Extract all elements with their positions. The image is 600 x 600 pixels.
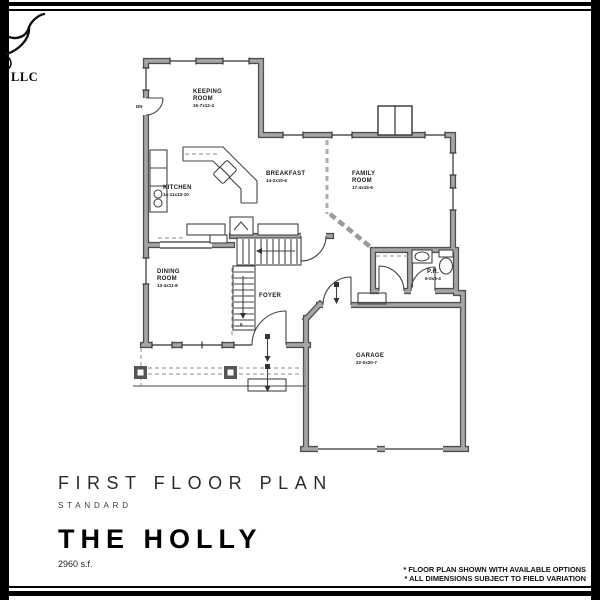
- powder-room-fixtures: [376, 250, 453, 274]
- breakfast-label: BREAKFAST: [266, 171, 305, 177]
- breakfast-dims: 14-2x10-6: [266, 178, 287, 183]
- foyer-label: FOYER: [259, 293, 282, 299]
- kitchen-label: KITCHEN: [163, 185, 192, 191]
- powder-room-dims: 6-0x5-4: [425, 276, 441, 281]
- dining-room-label2: ROOM: [157, 276, 177, 282]
- dining-room-dims: 13-4x11-8: [157, 283, 178, 288]
- disclaimer-line-2: * ALL DIMENSIONS SUBJECT TO FIELD VARIAT…: [403, 575, 586, 584]
- plan-title: FIRST FLOOR PLAN: [58, 473, 333, 494]
- angled-optional-wall: [330, 214, 373, 249]
- family-room-dims: 17-4x15-6: [352, 185, 373, 190]
- porch-column: [224, 366, 237, 379]
- keeping-room-dims: 16-7x12-4: [193, 103, 214, 108]
- garage-label: GARAGE: [356, 353, 384, 359]
- keeping-room-label: KEEPING: [193, 89, 222, 95]
- family-room-label2: ROOM: [352, 178, 372, 184]
- disclaimer-notes: * FLOOR PLAN SHOWN WITH AVAILABLE OPTION…: [403, 566, 586, 584]
- powder-room-label: P.R.: [427, 269, 439, 275]
- keeping-room-label2: ROOM: [193, 96, 213, 102]
- dining-room-label: DINING: [157, 269, 180, 275]
- fireplace-chimney: [378, 106, 412, 135]
- title-block: FIRST FLOOR PLAN STANDARD THE HOLLY 2960…: [58, 473, 333, 569]
- kitchen-dims: 14-11x13-10: [163, 192, 189, 197]
- option-label: STANDARD: [58, 501, 333, 510]
- garage-dims: 22-0x20-7: [356, 360, 377, 365]
- family-room-label: FAMILY: [352, 171, 375, 177]
- area-label: 2960 s.f.: [58, 559, 333, 569]
- model-name: THE HOLLY: [58, 524, 333, 555]
- down-marker: DN: [136, 104, 143, 109]
- porch-column: [134, 366, 147, 379]
